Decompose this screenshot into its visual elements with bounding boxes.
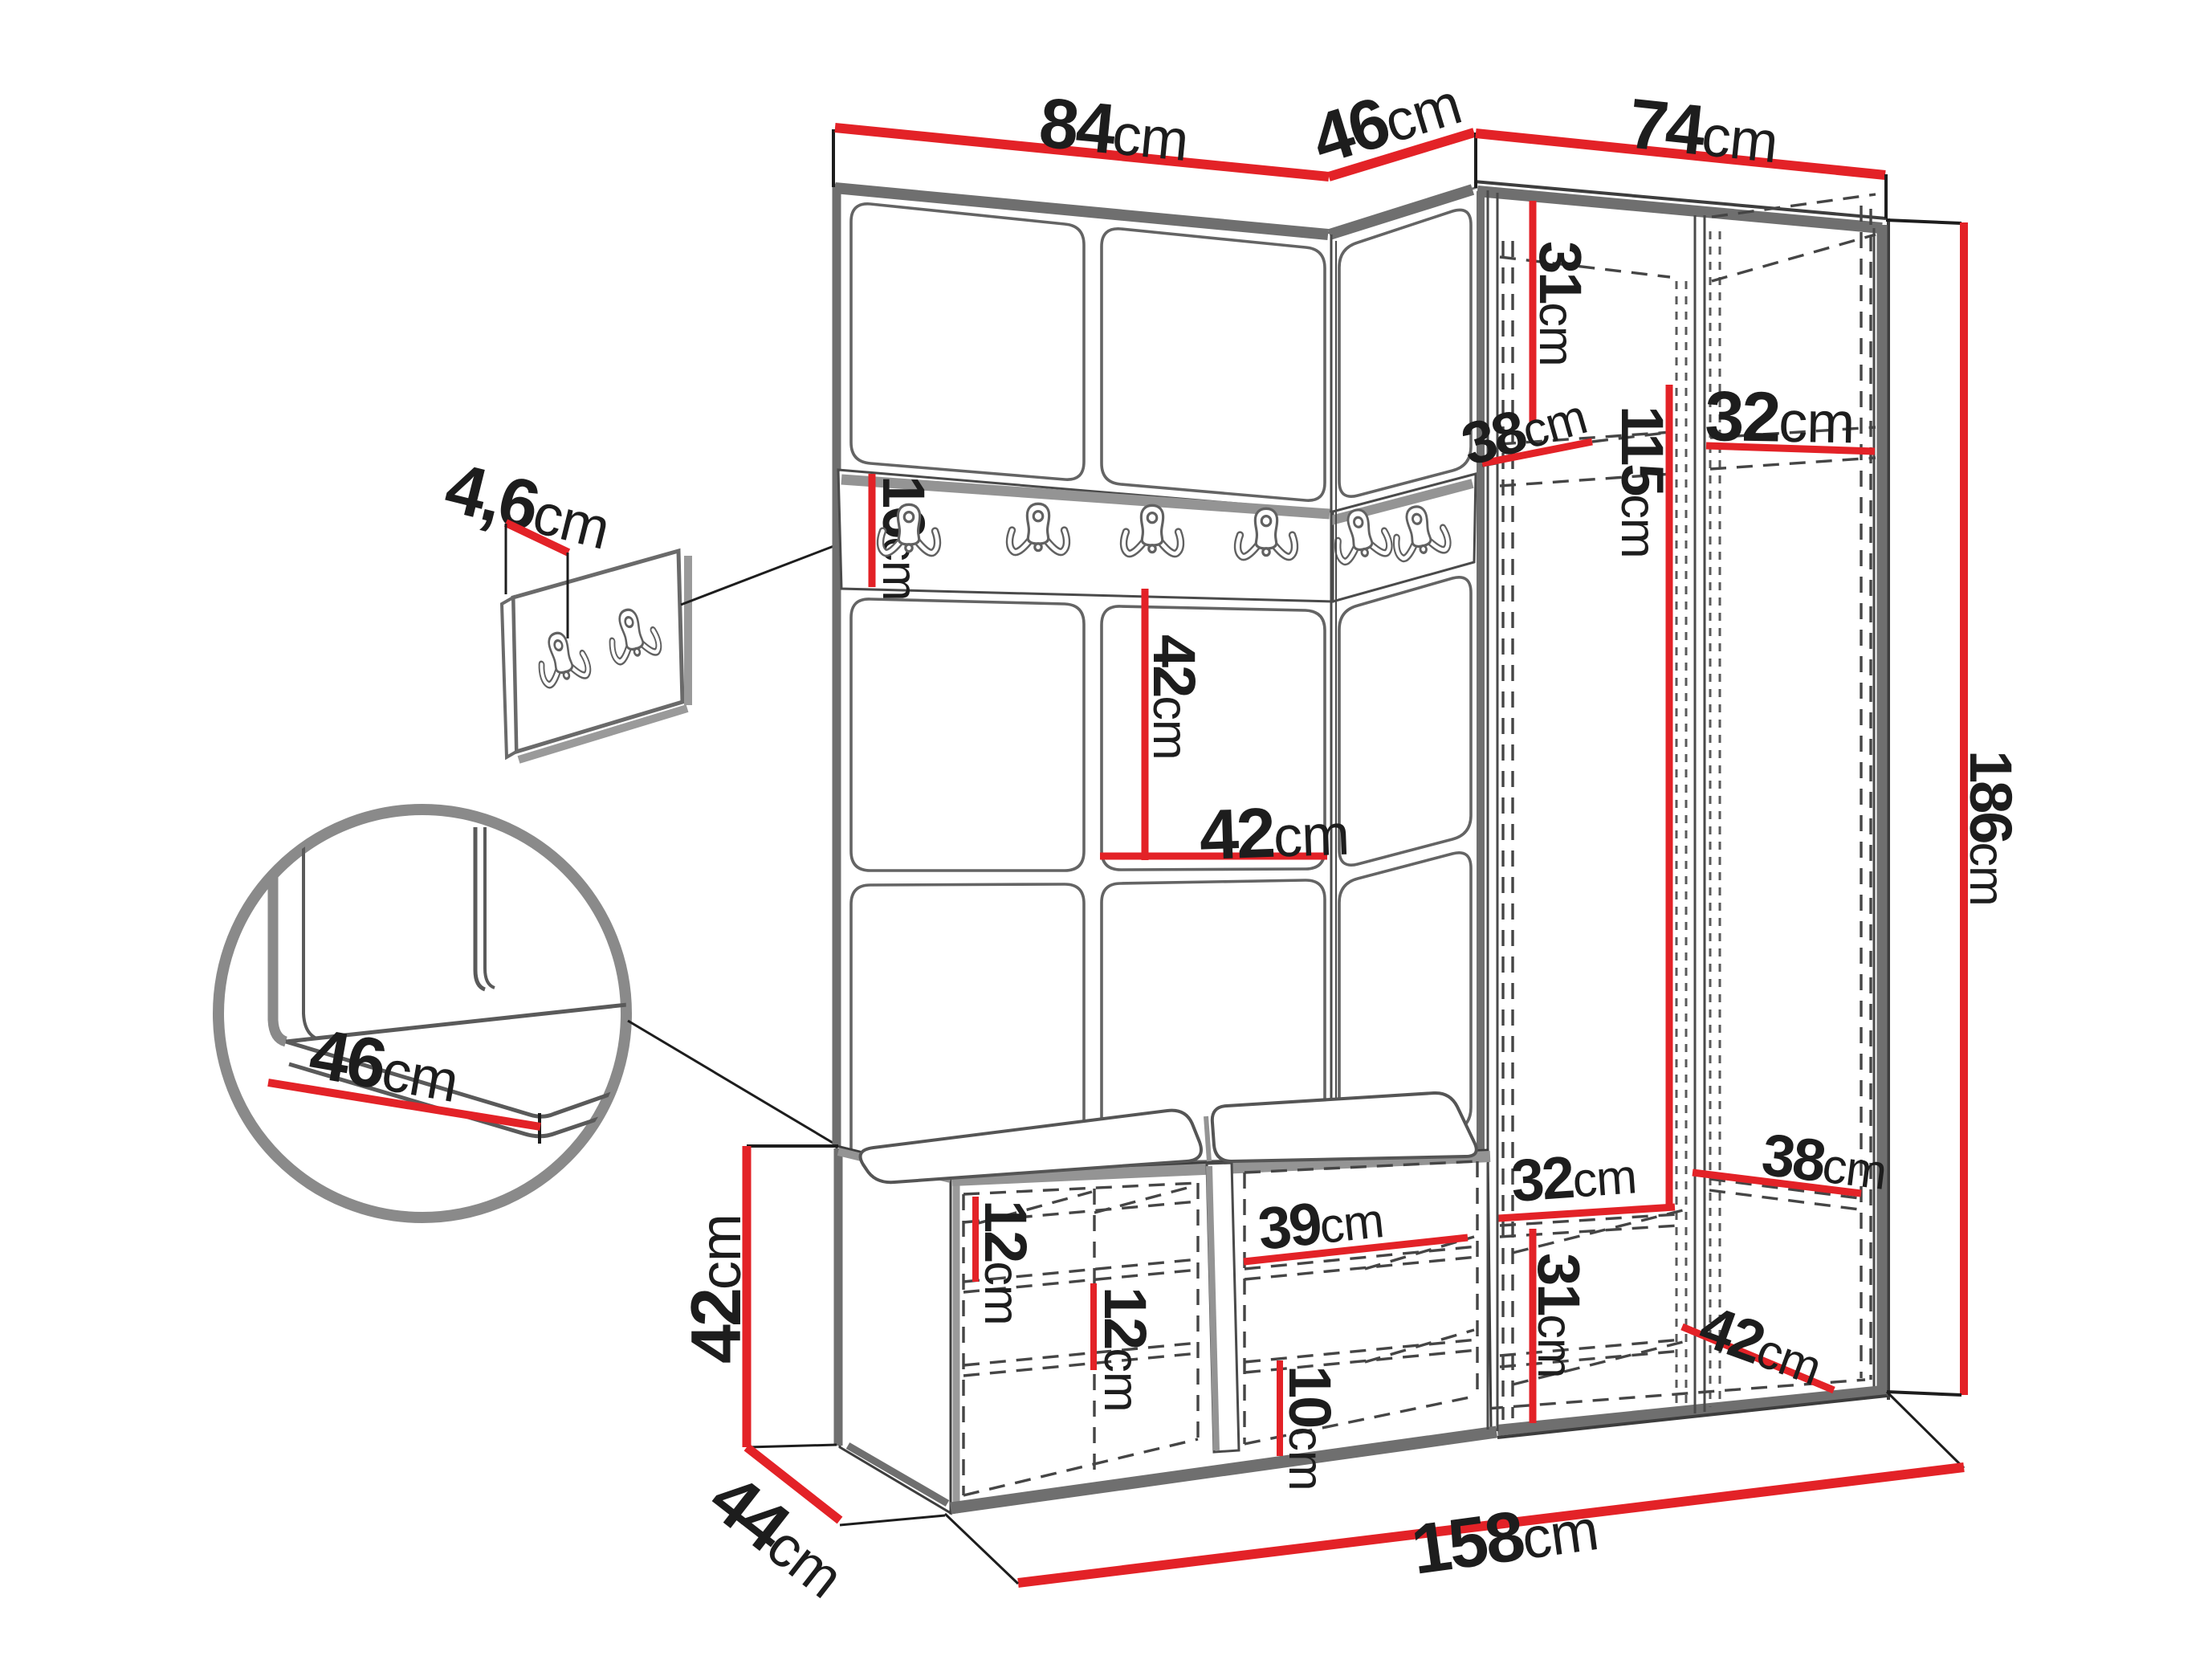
svg-text:12cm: 12cm: [1092, 1287, 1159, 1412]
svg-text:186cm: 186cm: [1957, 750, 2024, 906]
svg-text:12cm: 12cm: [972, 1200, 1039, 1325]
svg-text:31cm: 31cm: [1526, 1253, 1592, 1378]
svg-text:42cm: 42cm: [1141, 634, 1208, 760]
svg-text:31cm: 31cm: [1527, 241, 1594, 366]
svg-text:10cm: 10cm: [1277, 1365, 1343, 1491]
svg-text:115cm: 115cm: [1609, 406, 1676, 558]
